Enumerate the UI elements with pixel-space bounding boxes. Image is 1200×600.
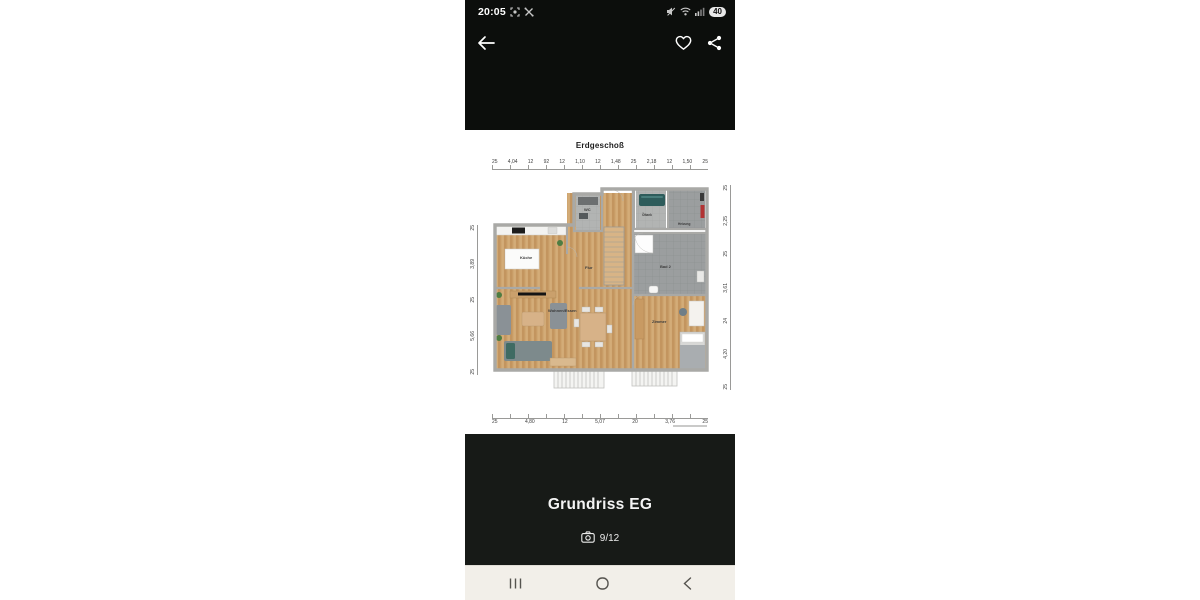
dimension-value: 25 <box>631 159 637 165</box>
dimension-value: 25 <box>492 419 498 425</box>
floor-plan-drawing: Küche Flur WC Öltank Heizung Bad 2 Zimme… <box>492 185 710 399</box>
dimension-value: 25 <box>702 159 708 165</box>
sound-muted-icon <box>666 7 676 16</box>
dimension-value: 25 <box>492 159 498 165</box>
room-label-wohnen-essen: Wohnen/Essen <box>548 308 577 313</box>
dimension-value: 2,25 <box>723 216 729 226</box>
dimension-value: 1,48 <box>611 159 621 165</box>
dimension-value: 4,20 <box>723 349 729 359</box>
dimension-value: 25 <box>470 369 476 375</box>
dimension-value: 3,89 <box>470 259 476 269</box>
signal-bars-icon <box>695 7 705 16</box>
dimension-value: 12 <box>562 419 568 425</box>
dimension-value: 25 <box>723 185 729 191</box>
camera-icon <box>581 531 595 546</box>
dimension-value: 12 <box>667 159 673 165</box>
room-label-flur: Flur <box>585 265 593 270</box>
dimension-value: 25 <box>723 251 729 257</box>
screen-record-icon <box>510 7 520 17</box>
heart-icon[interactable] <box>675 35 692 51</box>
room-label-bad2: Bad 2 <box>660 264 672 269</box>
photo-counter-text: 9/12 <box>600 533 619 544</box>
clock: 20:05 <box>478 6 506 18</box>
wifi-icon <box>680 7 691 16</box>
back-icon[interactable] <box>677 575 698 592</box>
dimension-value: 4,80 <box>525 419 535 425</box>
dimension-value: 20 <box>632 419 638 425</box>
battery-indicator: 40 <box>709 7 726 17</box>
back-arrow-icon[interactable] <box>477 35 495 51</box>
room-label-heizung: Heizung <box>678 222 690 226</box>
dimension-value: 12 <box>528 159 534 165</box>
room-label-oeltank: Öltank <box>642 212 652 217</box>
status-bar: 20:05 40 <box>465 0 735 19</box>
dimension-value: 1,10 <box>575 159 585 165</box>
dimension-value: 25 <box>723 384 729 390</box>
plan-title: Erdgeschoß <box>465 141 735 150</box>
phone-screen: 20:05 40 <box>465 0 735 600</box>
crossed-tools-icon <box>524 7 534 17</box>
dimension-line-right: 252,25253,61244,2025 <box>721 185 731 390</box>
dimension-value: 3,61 <box>723 283 729 293</box>
image-caption: Grundriss EG <box>548 496 652 514</box>
dimension-value: 24 <box>723 318 729 324</box>
dimension-value: 5,07 <box>595 419 605 425</box>
caption-panel: Grundriss EG 9/12 <box>465 434 735 565</box>
dimension-value: 12 <box>595 159 601 165</box>
share-icon[interactable] <box>707 35 722 51</box>
dimension-line-bottom: 254,80125,07203,7625 <box>492 414 708 425</box>
terrace-steps <box>554 371 677 388</box>
plan-footnote <box>673 425 707 427</box>
room-label-zimmer: Zimmer <box>652 319 667 324</box>
android-nav-bar <box>465 565 735 600</box>
dimension-value: 25 <box>470 297 476 303</box>
dimension-value: 1,50 <box>682 159 692 165</box>
dimension-line-top: 254,041292121,10121,48252,18121,5025 <box>492 159 708 170</box>
dimension-value: 4,04 <box>508 159 518 165</box>
home-icon[interactable] <box>590 575 615 592</box>
room-label-kueche: Küche <box>520 255 533 260</box>
photo-counter: 9/12 <box>581 531 619 546</box>
room-label-wc: WC <box>584 207 591 212</box>
dimension-value: 12 <box>559 159 565 165</box>
dimension-line-left: 253,89255,6625 <box>468 225 478 375</box>
dimension-value: 25 <box>470 225 476 231</box>
dimension-value: 5,66 <box>470 331 476 341</box>
staircase <box>604 227 624 285</box>
recent-apps-icon[interactable] <box>503 576 528 591</box>
floor-plan-image[interactable]: Erdgeschoß 254,041292121,10121,48252,181… <box>465 130 735 434</box>
dimension-value: 92 <box>544 159 550 165</box>
app-bar <box>465 19 735 51</box>
header: 20:05 40 <box>465 0 735 130</box>
dimension-value: 2,18 <box>647 159 657 165</box>
